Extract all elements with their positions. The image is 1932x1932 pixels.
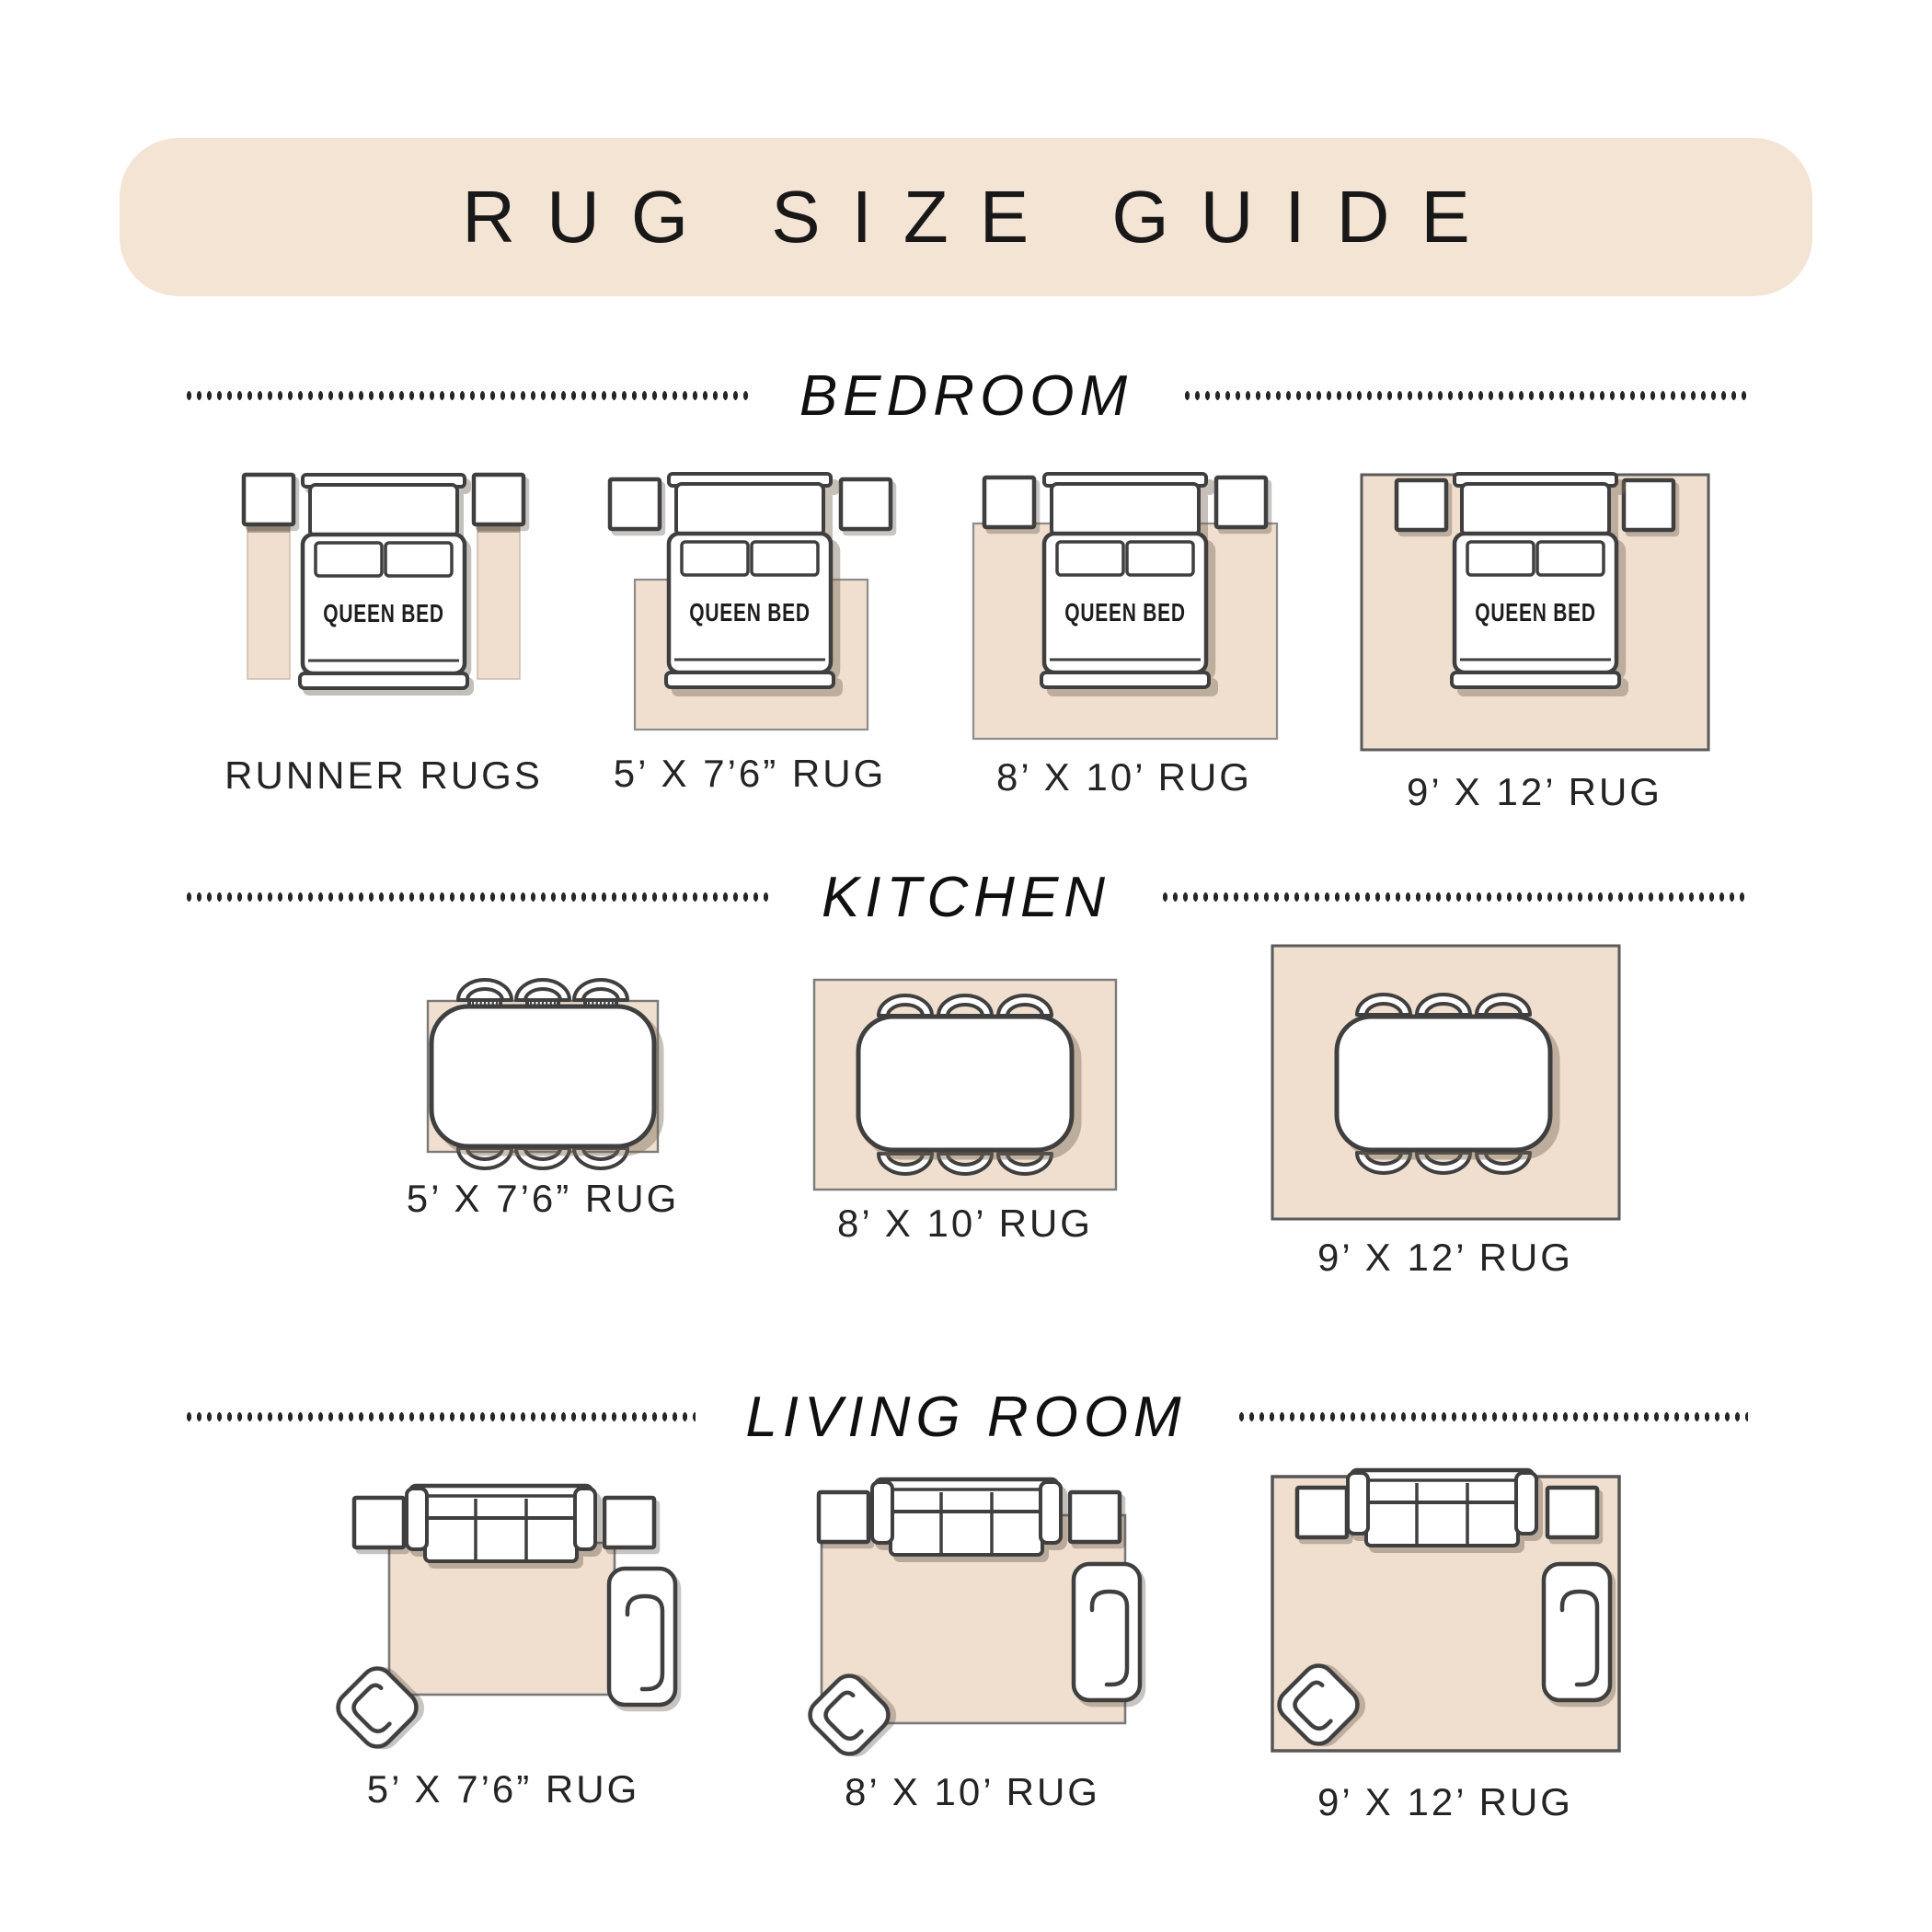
dining-table xyxy=(858,1017,1072,1150)
chaise-chair xyxy=(1544,1564,1610,1700)
dotted-divider-left xyxy=(184,891,772,903)
section-header-kitchen: KITCHEN xyxy=(184,868,1748,926)
queen-bed xyxy=(1452,474,1619,687)
rug-size-guide-page: { "page_title": "RUG SIZE GUIDE", "bed_l… xyxy=(0,0,1932,1932)
queen-bed xyxy=(300,475,467,688)
rug-size-label: RUNNER RUGS xyxy=(224,756,543,795)
side-table xyxy=(1297,1488,1347,1537)
section-title-bedroom: BEDROOM xyxy=(799,363,1133,429)
rug-size-label: 8’ X 10’ RUG xyxy=(996,758,1252,797)
living-room-9x12-diagram xyxy=(1272,1470,1619,1751)
side-table xyxy=(819,1492,868,1542)
dotted-divider-right xyxy=(1160,891,1748,903)
bedroom-5x76-diagram xyxy=(610,474,891,731)
sofa xyxy=(407,1486,595,1561)
side-table xyxy=(1070,1492,1120,1542)
title-banner: RUG SIZE GUIDE xyxy=(120,138,1812,296)
nightstand xyxy=(1397,480,1446,530)
chaise-chair xyxy=(609,1569,675,1705)
rug-size-label: 9’ X 12’ RUG xyxy=(1317,1783,1573,1822)
queen-bed xyxy=(666,474,834,687)
living-room-8x10-diagram xyxy=(802,1472,1143,1757)
nightstand xyxy=(1624,480,1673,530)
living-room-5x76-diagram xyxy=(331,1478,675,1757)
nightstand xyxy=(610,479,660,529)
dotted-divider-left xyxy=(184,1410,696,1423)
side-table xyxy=(354,1498,404,1547)
kitchen-5x76-diagram xyxy=(428,975,658,1173)
page-title: RUG SIZE GUIDE xyxy=(462,175,1501,259)
kitchen-8x10-diagram xyxy=(814,980,1116,1190)
section-title-living-room: LIVING ROOM xyxy=(745,1385,1186,1450)
rug-5x76 xyxy=(389,1543,615,1695)
nightstand xyxy=(841,479,891,529)
section-header-bedroom: BEDROOM xyxy=(184,366,1748,425)
bedroom-8x10-diagram xyxy=(973,474,1277,741)
sofa xyxy=(1348,1470,1536,1546)
nightstand xyxy=(474,475,523,524)
bedroom-9x12-diagram xyxy=(1362,471,1708,750)
rug-size-label: 5’ X 7’6” RUG xyxy=(367,1770,640,1809)
rug-size-label: 9’ X 12’ RUG xyxy=(1317,1238,1573,1277)
dotted-divider-right xyxy=(1182,389,1748,402)
dotted-divider-right xyxy=(1236,1410,1748,1423)
bedroom-runner-rugs-diagram xyxy=(243,471,524,692)
side-table xyxy=(1547,1488,1597,1537)
rug-size-label: 9’ X 12’ RUG xyxy=(1407,773,1662,811)
nightstand xyxy=(1216,477,1266,527)
rug-size-label: 5’ X 7’6” RUG xyxy=(614,754,887,793)
chaise-chair xyxy=(1074,1564,1140,1700)
dining-table xyxy=(431,1006,654,1146)
kitchen-9x12-diagram xyxy=(1272,946,1619,1219)
rug-size-label: 8’ X 10’ RUG xyxy=(837,1204,1093,1243)
sofa xyxy=(872,1479,1061,1555)
section-title-kitchen: KITCHEN xyxy=(822,865,1110,930)
rug-size-label: 8’ X 10’ RUG xyxy=(845,1773,1100,1811)
rug-size-label: 5’ X 7’6” RUG xyxy=(407,1179,680,1218)
side-table xyxy=(604,1498,654,1547)
nightstand xyxy=(984,477,1034,527)
dotted-divider-left xyxy=(184,389,750,402)
dining-table xyxy=(1337,1017,1550,1150)
queen-bed xyxy=(1041,474,1209,687)
nightstand xyxy=(244,475,293,524)
section-header-living-room: LIVING ROOM xyxy=(184,1387,1748,1446)
